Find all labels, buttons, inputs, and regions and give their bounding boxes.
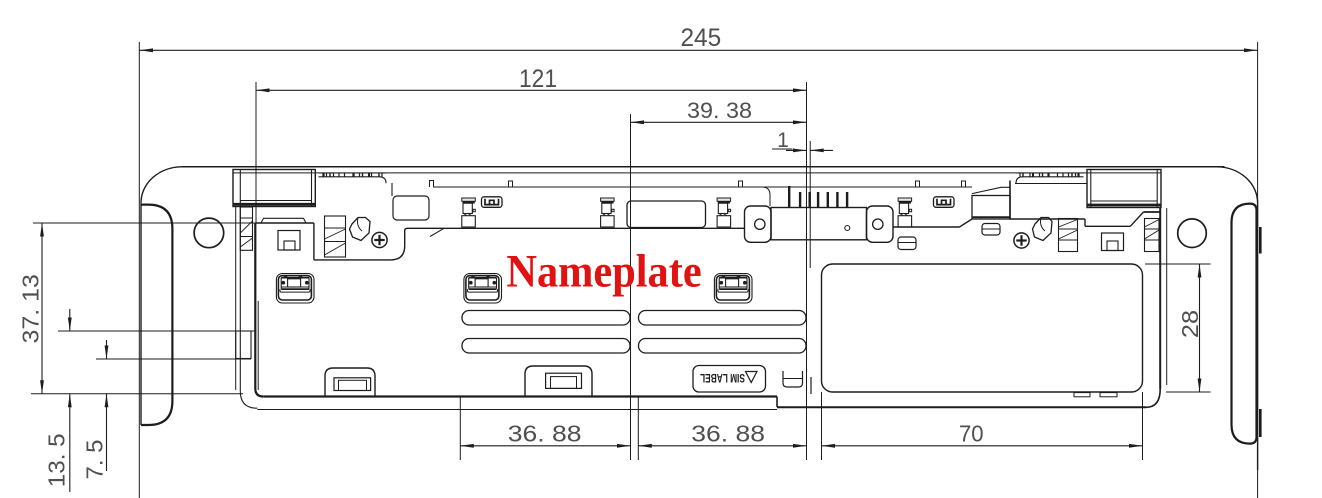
svg-text:SIM LABEL: SIM LABEL xyxy=(700,371,745,383)
svg-text:245: 245 xyxy=(680,24,721,52)
svg-text:13. 5: 13. 5 xyxy=(44,433,70,487)
svg-text:Nameplate: Nameplate xyxy=(506,245,701,297)
svg-text:7. 5: 7. 5 xyxy=(82,440,108,480)
svg-text:36. 88: 36. 88 xyxy=(508,420,582,446)
svg-text:28: 28 xyxy=(1177,310,1203,338)
svg-text:36. 88: 36. 88 xyxy=(691,420,765,446)
svg-text:37. 13: 37. 13 xyxy=(18,274,44,343)
svg-text:121: 121 xyxy=(519,65,557,93)
svg-text:70: 70 xyxy=(959,421,984,447)
svg-text:39. 38: 39. 38 xyxy=(687,98,752,123)
